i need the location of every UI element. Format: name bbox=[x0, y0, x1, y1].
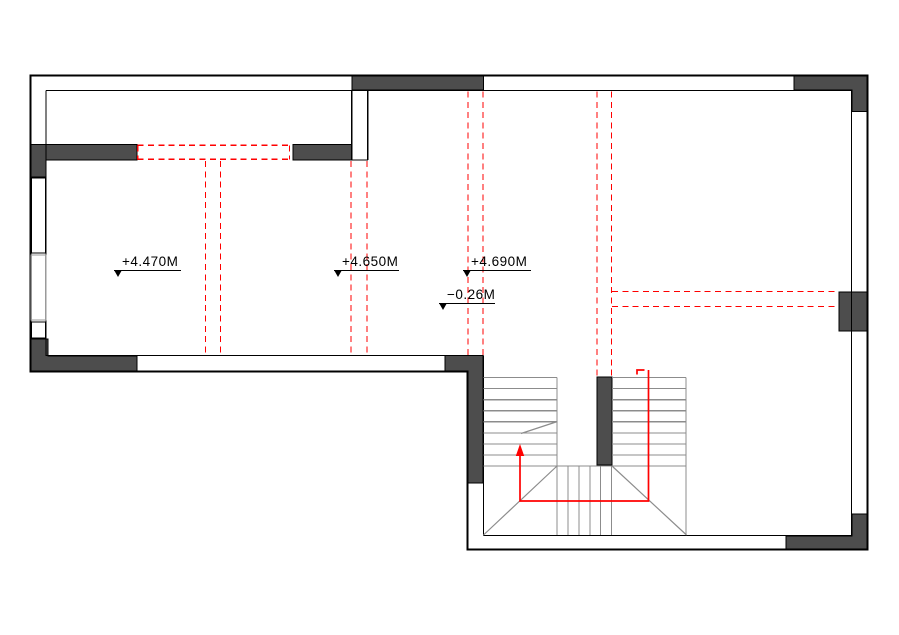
level-marker-minus-026: −0.26M bbox=[439, 289, 495, 304]
staircase bbox=[484, 378, 687, 536]
level-value: +4.690M bbox=[471, 255, 527, 269]
level-marker-4470: +4.470M bbox=[114, 256, 181, 271]
up-arrow-icon bbox=[516, 444, 524, 456]
stair-break-line bbox=[521, 422, 558, 434]
dashed-beam-pair-horizontal bbox=[612, 292, 839, 307]
dashed-beam-pair-3 bbox=[468, 92, 483, 356]
datum-triangle-icon bbox=[439, 303, 447, 310]
datum-triangle-icon bbox=[334, 270, 342, 277]
window-opening-middle bbox=[31, 255, 46, 320]
dashed-beam-pair-1 bbox=[206, 161, 221, 355]
wall-block-stair-left bbox=[445, 356, 483, 484]
dashed-beam-pair-4 bbox=[597, 92, 612, 377]
wall-block-top bbox=[352, 75, 484, 90]
interior-wall-lines bbox=[46, 91, 852, 536]
wall-block-top-right-corner bbox=[794, 75, 868, 112]
level-marker-4650: +4.650M bbox=[334, 256, 399, 271]
stair-left-flight-treads bbox=[484, 378, 558, 456]
stair-diagonals bbox=[484, 422, 687, 536]
left-wall-windows bbox=[31, 178, 46, 338]
red-dashed-overhead-lines bbox=[138, 92, 839, 377]
level-value: −0.26M bbox=[447, 288, 495, 302]
route-start-tick bbox=[637, 370, 645, 375]
level-value: +4.470M bbox=[122, 255, 178, 269]
floor-plan-drawing bbox=[0, 0, 899, 635]
wall-block-mid bbox=[293, 145, 352, 161]
datum-triangle-icon bbox=[463, 270, 471, 277]
level-marker-4690: +4.690M bbox=[463, 256, 531, 271]
stair-landing-and-winders bbox=[484, 378, 687, 536]
window-opening-upper bbox=[31, 178, 46, 253]
floor-plan-canvas: +4.470M +4.650M +4.690M −0.26M bbox=[0, 0, 899, 635]
exterior-wall-outline bbox=[31, 76, 868, 550]
wall-block-right-pier bbox=[839, 292, 867, 331]
wall-block-bottom-right-corner bbox=[786, 514, 868, 550]
wall-block-stair-spine bbox=[597, 377, 612, 465]
wall-fill-blocks bbox=[31, 75, 868, 550]
level-value: +4.650M bbox=[342, 255, 398, 269]
dashed-opening-rect bbox=[138, 145, 290, 159]
window-opening-lower bbox=[31, 322, 46, 338]
datum-triangle-icon bbox=[114, 270, 122, 277]
